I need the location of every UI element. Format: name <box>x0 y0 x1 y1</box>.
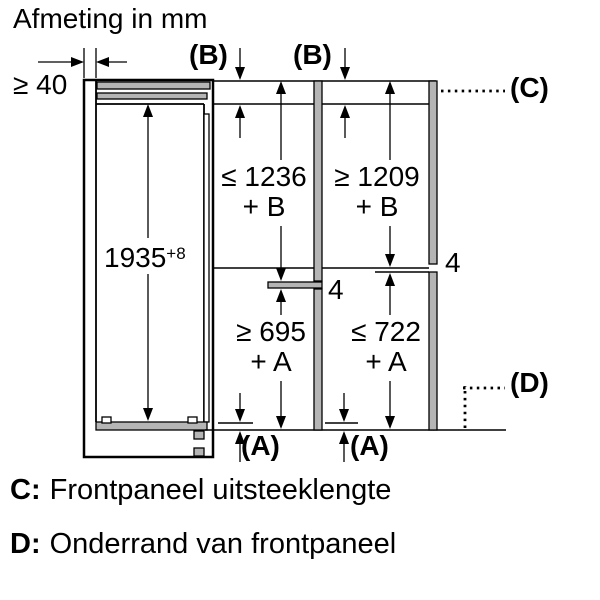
upper-right-dimension-value: ≥ 1209 <box>322 162 432 192</box>
b-marker-right: (B) <box>293 40 332 70</box>
wall-gap-label: ≥ 40 <box>13 70 67 100</box>
lower-right-dimension: ≤ 722 + A <box>331 317 441 377</box>
front-panel-bars <box>268 81 437 430</box>
a-marker-right: (A) <box>350 431 389 461</box>
lower-left-dimension: ≥ 695 + A <box>216 317 326 377</box>
upper-left-dimension: ≤ 1236 + B <box>209 162 319 222</box>
divider-thickness-left: 4 <box>328 275 344 305</box>
legend-key-c: C: <box>10 474 41 506</box>
upper-left-dimension-addend: + B <box>209 192 319 222</box>
installation-dimension-diagram: Afmeting in mm ≥ 40 (B) (B) (C) (D) (A) … <box>0 0 600 600</box>
upper-left-dimension-value: ≤ 1236 <box>209 162 319 192</box>
a-marker-left: (A) <box>241 431 280 461</box>
legend-text-c: Frontpaneel uitsteeklengte <box>50 474 392 506</box>
lower-right-dimension-addend: + A <box>331 347 441 377</box>
b-marker-left: (B) <box>189 40 228 70</box>
reference-lines <box>205 81 506 430</box>
niche-height-value: 1935 <box>104 242 166 273</box>
d-marker: (D) <box>510 368 549 398</box>
lower-left-dimension-addend: + A <box>216 347 326 377</box>
diagram-title: Afmeting in mm <box>13 4 208 34</box>
lower-left-dimension-value: ≥ 695 <box>216 317 326 347</box>
legend-row-c: C:Frontpaneel uitsteeklengte <box>10 474 391 507</box>
c-marker: (C) <box>510 73 549 103</box>
legend-key-d: D: <box>10 528 41 560</box>
niche-height-dimension: 1935+8 <box>104 239 186 273</box>
upper-right-dimension-addend: + B <box>322 192 432 222</box>
upper-right-dimension: ≥ 1209 + B <box>322 162 432 222</box>
legend-row-d: D:Onderrand van frontpaneel <box>10 528 396 561</box>
legend-text-d: Onderrand van frontpaneel <box>50 528 397 560</box>
niche-height-tolerance: +8 <box>166 244 185 263</box>
divider-thickness-right: 4 <box>445 248 461 278</box>
lower-right-dimension-value: ≤ 722 <box>331 317 441 347</box>
